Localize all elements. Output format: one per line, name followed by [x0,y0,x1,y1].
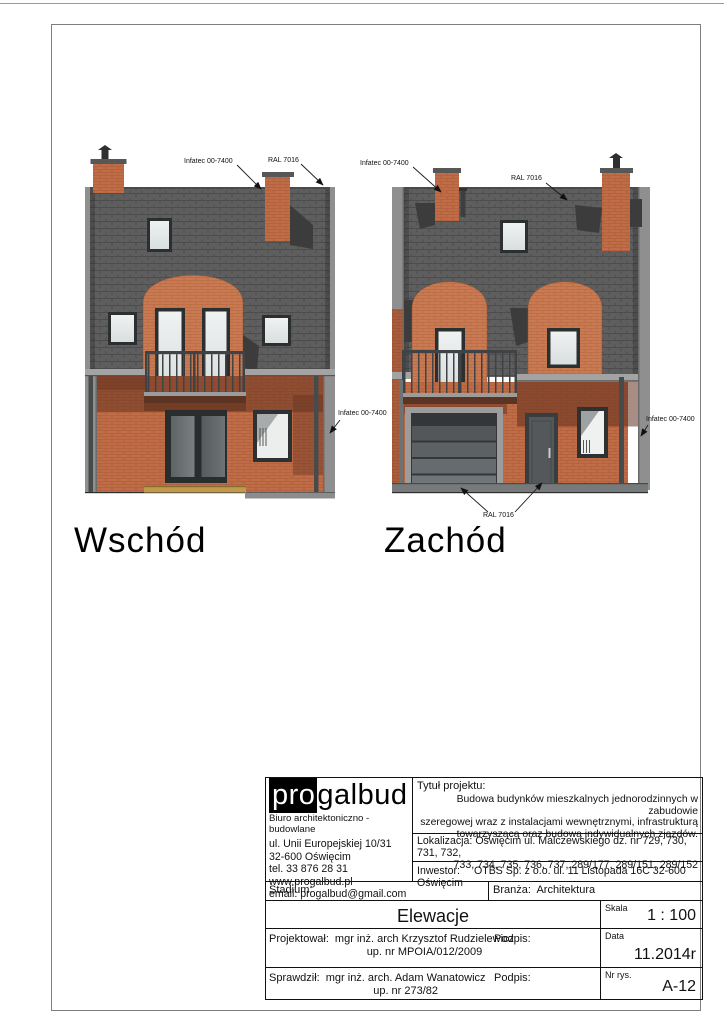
investor-label: Inwestor: [417,865,460,877]
door-handle [549,448,551,458]
east-ground-window [253,410,292,462]
east-balcony [144,351,246,411]
company-logo: progalbud [269,780,409,811]
signature-label: Podpis: [494,972,531,984]
elevation-label-east: Wschód [74,521,206,561]
checker-name: mgr inż. arch. Adam Wanatowicz [326,972,486,985]
annotation-ral: RAL 7016 [268,157,299,165]
drawing-number-label: Nr rys. [605,970,632,980]
drawing-sheet-view: Infatec 00-7400 RAL 7016 Infatec 00-7400… [0,0,724,1024]
west-garage-door [405,407,503,490]
branch-cell: Branża: Architektura [489,882,702,901]
checker-label: Sprawdził: [269,972,320,997]
location-cell: Lokalizacja: Oświęcim ul. Malczewskiego … [413,834,702,862]
company-subtitle: Biuro architektoniczno - budowlane [269,813,409,835]
branch-label: Branża: [493,884,531,896]
annotation-ral: RAL 7016 [483,512,514,520]
annotation-facade-paint: Infatec 00-7400 [646,416,695,424]
checker-license: up. nr 273/82 [326,985,486,998]
date-value: 11.2014r [634,946,696,964]
west-dormer-right [528,282,602,376]
east-plinth [245,493,335,499]
project-description-line: szeregowej wraz z instalacjami wewnętrzn… [417,817,698,829]
ground-line [392,492,648,493]
designer-label: Projektował: [269,933,329,958]
drawing-title: Elewacje [397,906,469,926]
east-chimney-left [91,145,127,193]
location-label: Lokalizacja: [417,835,472,847]
drawing-number-cell: Nr rys. A-12 [601,968,702,999]
date-cell: Data 11.2014r [601,929,702,968]
date-label: Data [605,931,624,941]
stadium-cell: Stadium: [266,882,489,901]
west-balcony [400,350,517,404]
stadium-label: Stadium: [269,884,312,896]
branch-value: Architektura [536,884,595,896]
elevation-label-west: Zachód [384,521,507,561]
drawing-number-value: A-12 [662,978,696,996]
designer-cell: Projektował: mgr inż. arch Krzysztof Rud… [266,929,601,968]
west-elevation-drawing [390,145,652,505]
logo-galbud: galbud [317,779,407,811]
project-title-label: Tytuł projektu: [417,780,698,792]
east-entry-step [144,486,246,493]
project-description-line: Budowa budynków mieszkalnych jednorodzin… [417,794,698,817]
signature-label: Podpis: [494,933,531,945]
annotation-facade-paint: Infatec 00-7400 [184,158,233,166]
annotation-ral: RAL 7016 [511,175,542,183]
title-block: progalbud Biuro architektoniczno - budow… [265,777,703,1000]
west-chimney-left [433,168,467,221]
west-ground-window [577,407,608,458]
west-chimney-right [600,153,633,251]
east-patio-door [165,410,227,483]
balcony-slab [400,393,517,397]
investor-cell: Inwestor:OTBS Sp. z o.o. ul. 11 Listopad… [413,862,702,882]
roof-shadow [575,205,602,233]
designer-license: up. nr MPOIA/012/2009 [335,946,514,959]
west-plinth [392,483,648,492]
east-elevation-drawing [85,145,335,505]
balcony-slab [144,392,246,396]
company-address-line: tel. 33 876 28 31 [269,863,409,876]
logo-pro: pro [269,778,317,813]
company-address-line: 32-600 Oświęcim [269,851,409,864]
scale-value: 1 : 100 [647,907,696,925]
drawing-title-cell: Elewacje [266,901,601,929]
project-title-cell: Tytuł projektu: Budowa budynków mieszkal… [413,778,702,834]
company-cell: progalbud Biuro architektoniczno - budow… [266,778,413,882]
scale-cell: Skala 1 : 100 [601,901,702,929]
page-separator-line [0,3,724,4]
company-address-line: ul. Unii Europejskiej 10/31 [269,838,409,851]
west-entrance-door [525,413,558,490]
designer-name: mgr inż. arch Krzysztof Rudzielewicz [335,933,514,946]
checker-cell: Sprawdził: mgr inż. arch. Adam Wanatowic… [266,968,601,999]
annotation-facade-paint: Infatec 00-7400 [360,160,409,168]
annotation-facade-paint: Infatec 00-7400 [338,410,387,418]
west-roof-window [500,220,528,253]
scale-label: Skala [605,903,628,913]
roof-shadow [630,199,642,227]
